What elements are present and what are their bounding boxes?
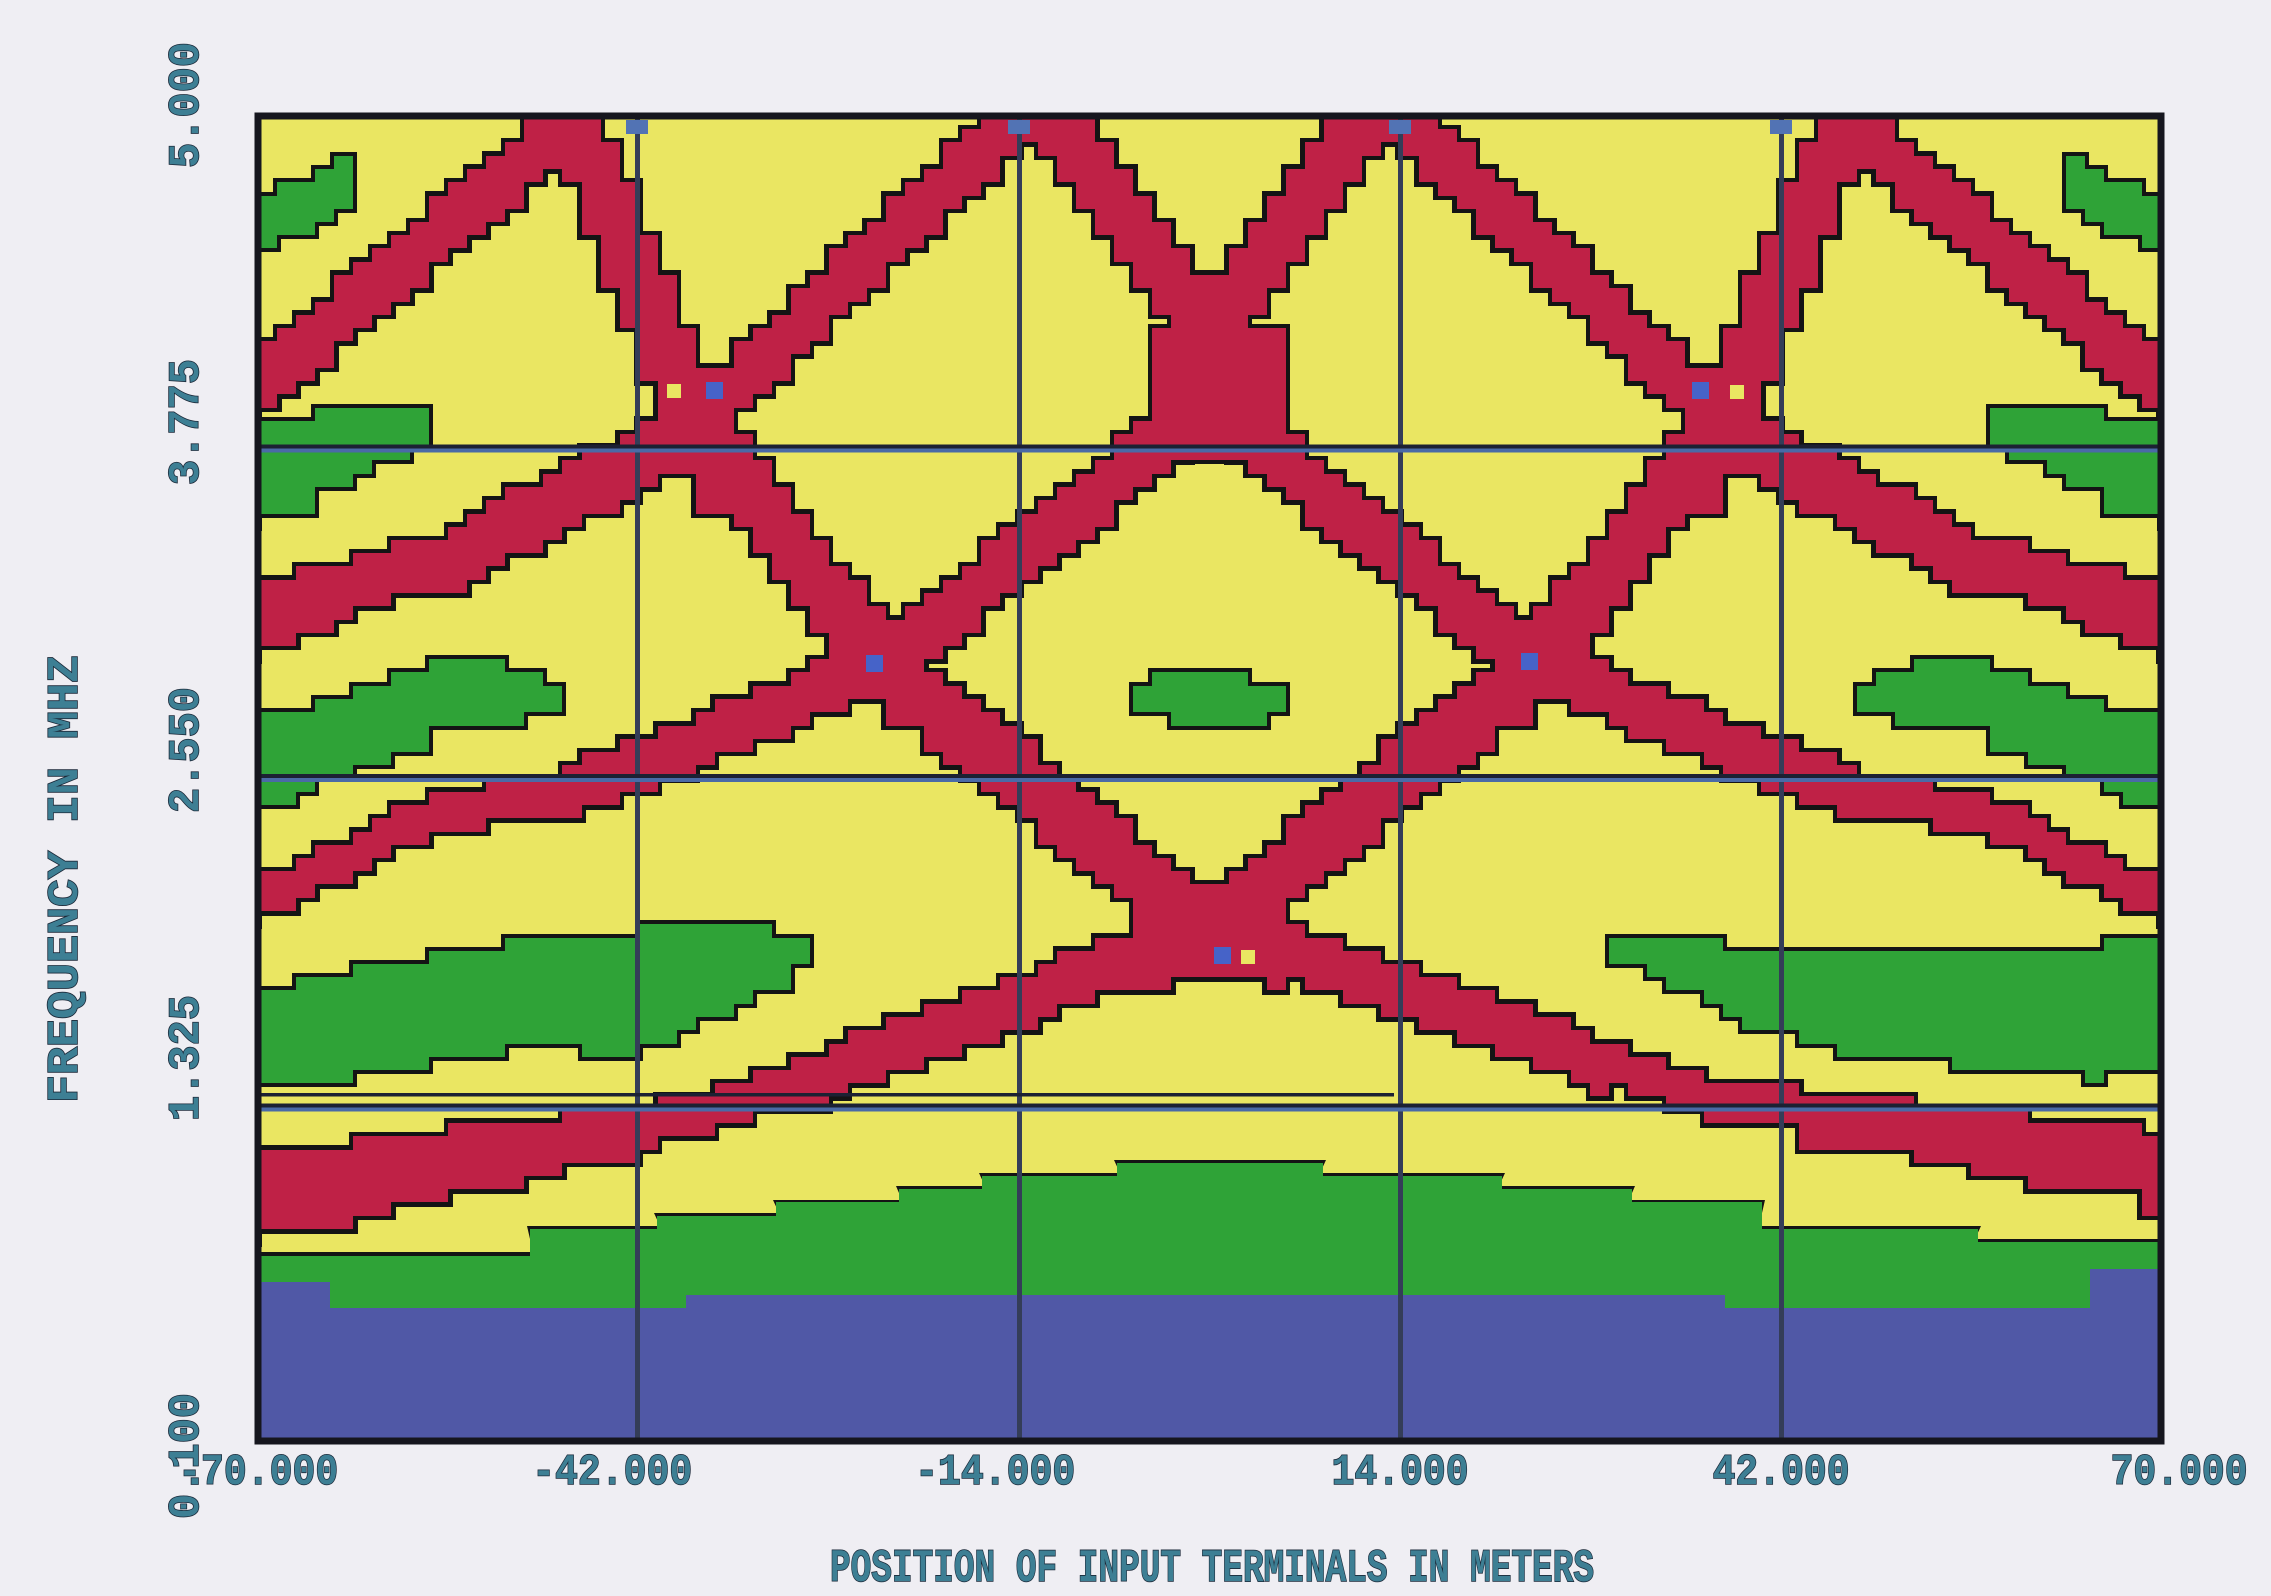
svg-text:5.000: 5.000 bbox=[162, 42, 212, 168]
svg-text:-70.000: -70.000 bbox=[178, 1448, 338, 1498]
svg-text:2.550: 2.550 bbox=[162, 687, 212, 813]
svg-text:70.000: 70.000 bbox=[2111, 1448, 2248, 1498]
svg-text:-14.000: -14.000 bbox=[915, 1448, 1075, 1498]
svg-text:3.775: 3.775 bbox=[162, 359, 212, 485]
svg-text:POSITION OF INPUT TERMINALS IN: POSITION OF INPUT TERMINALS IN METERS bbox=[830, 1543, 1594, 1595]
svg-text:FREQUENCY IN MHZ: FREQUENCY IN MHZ bbox=[41, 655, 91, 1103]
svg-text:42.000: 42.000 bbox=[1713, 1448, 1850, 1498]
svg-text:1.325: 1.325 bbox=[162, 995, 212, 1121]
svg-text:14.000: 14.000 bbox=[1332, 1448, 1469, 1498]
svg-text:-42.000: -42.000 bbox=[532, 1448, 692, 1498]
